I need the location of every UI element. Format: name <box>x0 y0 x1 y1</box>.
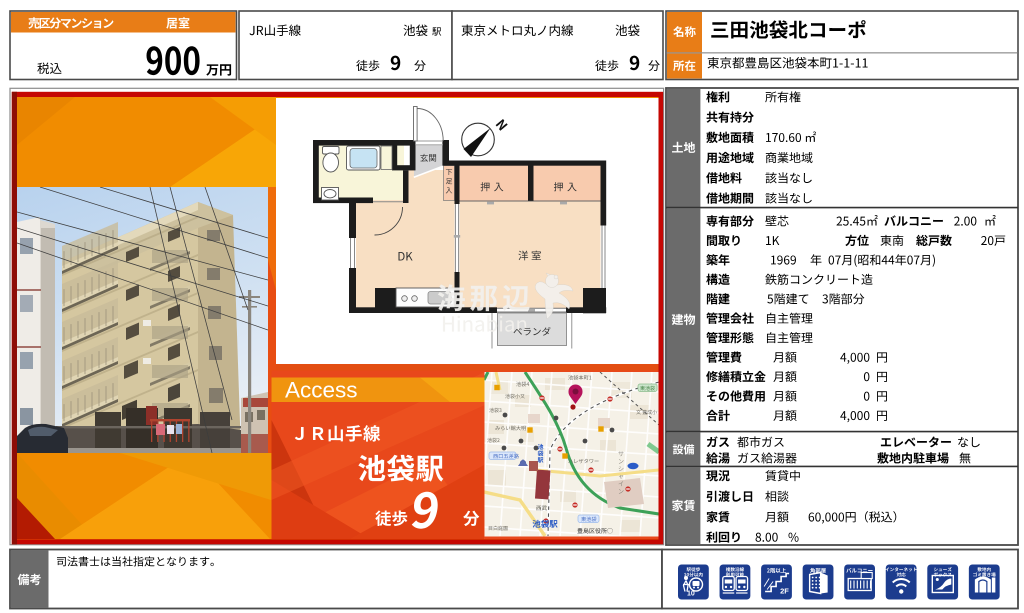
svg-text:10: 10 <box>687 591 695 598</box>
svg-text:2F: 2F <box>780 587 789 596</box>
svg-text:Access: Access <box>285 378 358 403</box>
